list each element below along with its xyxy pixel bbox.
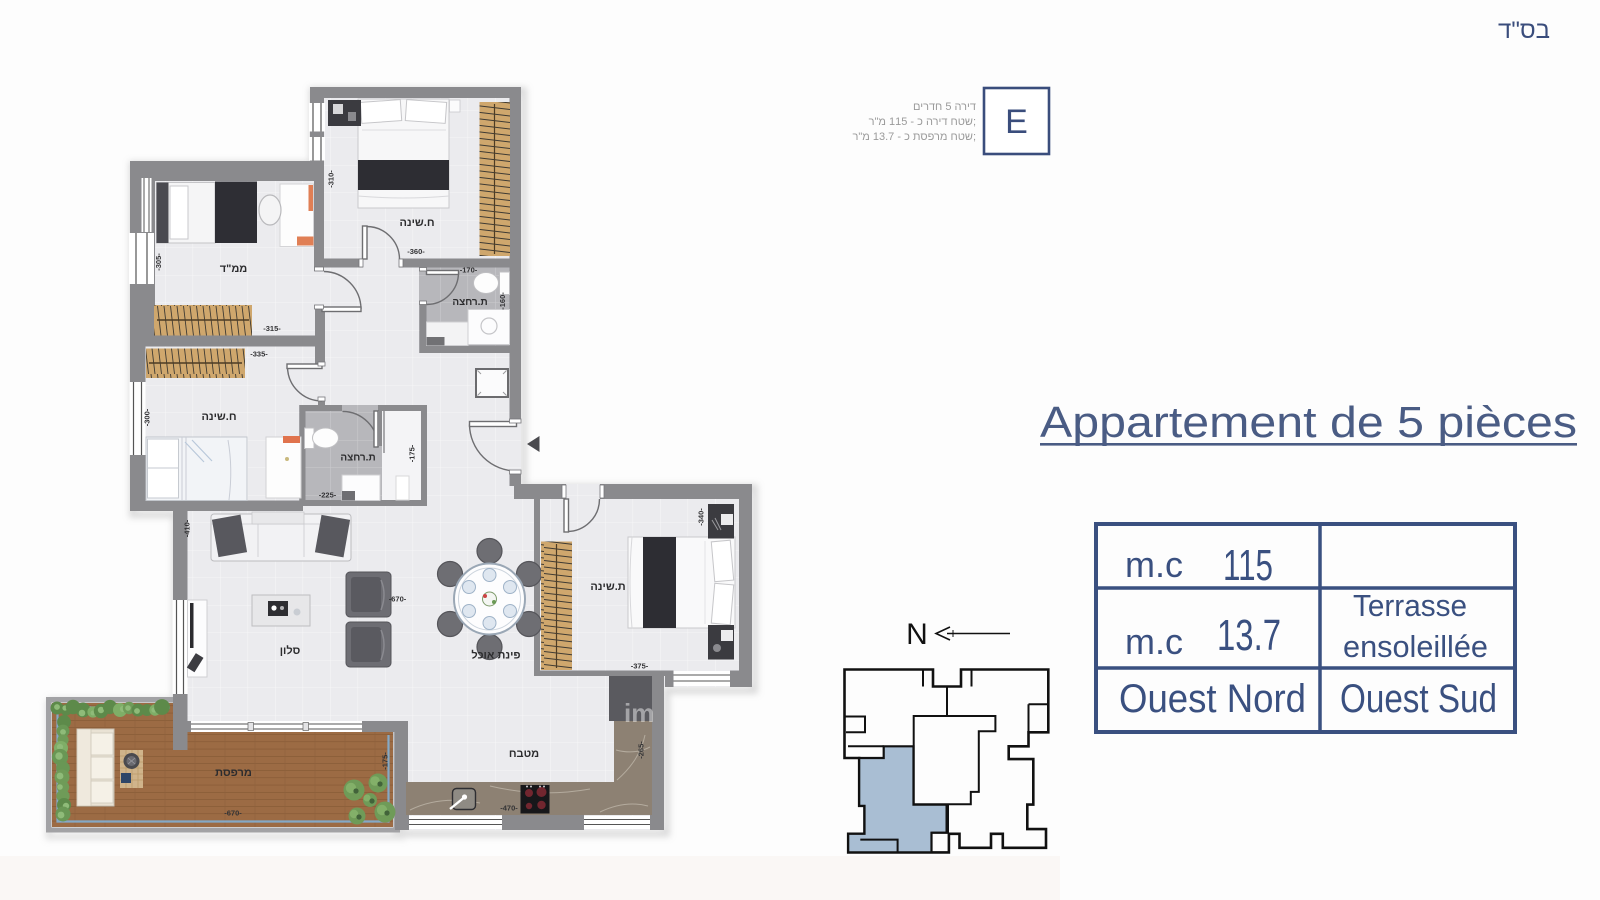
svg-text:סלון: סלון xyxy=(280,644,301,657)
svg-text:N: N xyxy=(906,618,928,651)
svg-text:-175-: -175- xyxy=(408,444,417,462)
svg-text:שטח מרפסת כ - 13.7 מ"ר;: שטח מרפסת כ - 13.7 מ"ר; xyxy=(852,131,976,143)
svg-text:מטבח: מטבח xyxy=(509,748,539,760)
svg-text:-175-: -175- xyxy=(381,752,390,770)
svg-text:-360-: -360- xyxy=(407,247,425,256)
svg-text:-305-: -305- xyxy=(154,253,163,271)
svg-text:E: E xyxy=(1005,103,1028,141)
svg-text:m.c: m.c xyxy=(1125,621,1183,662)
svg-text:m.c: m.c xyxy=(1125,544,1183,585)
svg-text:בס"ד: בס"ד xyxy=(1498,17,1550,44)
svg-text:ח.שינה: ח.שינה xyxy=(399,217,434,229)
svg-text:-160-: -160- xyxy=(498,292,507,310)
svg-text:115: 115 xyxy=(1223,541,1273,590)
svg-text:-335-: -335- xyxy=(250,350,268,359)
svg-text:-300-: -300- xyxy=(143,408,152,426)
svg-text:דירה 5 חדרים: דירה 5 חדרים xyxy=(913,101,976,113)
svg-text:-375-: -375- xyxy=(631,662,649,671)
svg-text:Appartement de 5 pièces: Appartement de 5 pièces xyxy=(1040,398,1577,447)
svg-text:-310-: -310- xyxy=(327,170,336,188)
svg-text:Ouest Sud: Ouest Sud xyxy=(1340,677,1497,721)
svg-text:Terrasse: Terrasse xyxy=(1353,588,1467,623)
svg-text:-670-: -670- xyxy=(389,595,407,604)
svg-text:מרפסת: מרפסת xyxy=(215,767,252,779)
svg-text:ת.שינה: ת.שינה xyxy=(590,581,625,593)
svg-text:-340-: -340- xyxy=(697,508,706,526)
svg-text:im: im xyxy=(624,698,654,728)
svg-text:ensoleillée: ensoleillée xyxy=(1343,629,1488,664)
svg-text:ממ"ד: ממ"ד xyxy=(220,263,248,275)
svg-text:13.7: 13.7 xyxy=(1217,611,1281,660)
svg-text:ח.שינה: ח.שינה xyxy=(201,411,236,423)
svg-text:-670-: -670- xyxy=(224,809,242,818)
svg-text:שטח דירה כ - 115 מ"ר;: שטח דירה כ - 115 מ"ר; xyxy=(869,116,976,128)
svg-text:Ouest Nord: Ouest Nord xyxy=(1119,677,1306,721)
svg-text:-315-: -315- xyxy=(263,324,281,333)
svg-text:-170-: -170- xyxy=(460,266,478,275)
svg-text:פינת אוכל: פינת אוכל xyxy=(471,649,520,662)
svg-text:-225-: -225- xyxy=(319,491,337,500)
svg-text:ת.רחצה: ת.רחצה xyxy=(340,453,375,464)
svg-text:ת.רחצה: ת.רחצה xyxy=(452,297,487,308)
svg-text:-265-: -265- xyxy=(637,741,646,759)
svg-text:-470-: -470- xyxy=(500,804,518,813)
svg-text:-410-: -410- xyxy=(183,519,192,537)
